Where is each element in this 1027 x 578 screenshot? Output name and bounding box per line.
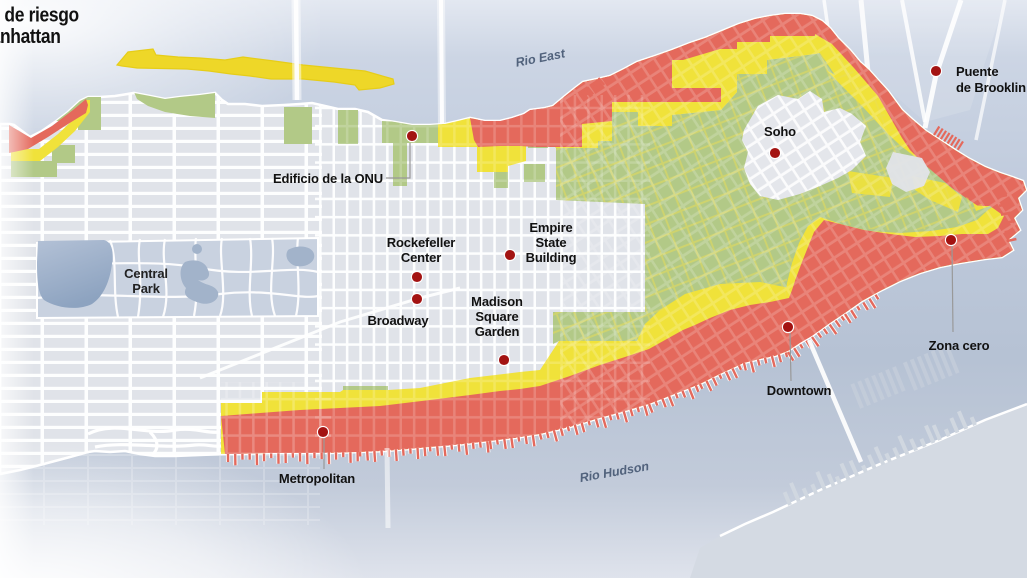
svg-text:Metropolitan: Metropolitan bbox=[279, 471, 355, 486]
svg-text:Madison: Madison bbox=[471, 294, 523, 309]
svg-text:Rockefeller: Rockefeller bbox=[387, 235, 456, 250]
svg-text:Edificio de la ONU: Edificio de la ONU bbox=[273, 171, 383, 186]
svg-text:Central: Central bbox=[124, 266, 168, 281]
svg-text:Puente: Puente bbox=[956, 64, 998, 79]
svg-text:Broadway: Broadway bbox=[368, 313, 430, 328]
svg-text:de Brooklin: de Brooklin bbox=[956, 80, 1026, 95]
svg-text:Soho: Soho bbox=[764, 124, 796, 139]
svg-text:Empire: Empire bbox=[529, 220, 572, 235]
svg-text:Zona cero: Zona cero bbox=[929, 338, 990, 353]
svg-text:Square: Square bbox=[475, 309, 518, 324]
svg-text:en Manhattan: en Manhattan bbox=[0, 26, 61, 49]
svg-text:State: State bbox=[535, 235, 566, 250]
svg-text:Downtown: Downtown bbox=[767, 383, 832, 398]
svg-text:Park: Park bbox=[132, 281, 161, 296]
svg-text:Zonas de riesgo: Zonas de riesgo bbox=[0, 4, 79, 27]
svg-text:Building: Building bbox=[526, 250, 577, 265]
svg-text:Garden: Garden bbox=[475, 324, 520, 339]
svg-text:Center: Center bbox=[401, 250, 441, 265]
